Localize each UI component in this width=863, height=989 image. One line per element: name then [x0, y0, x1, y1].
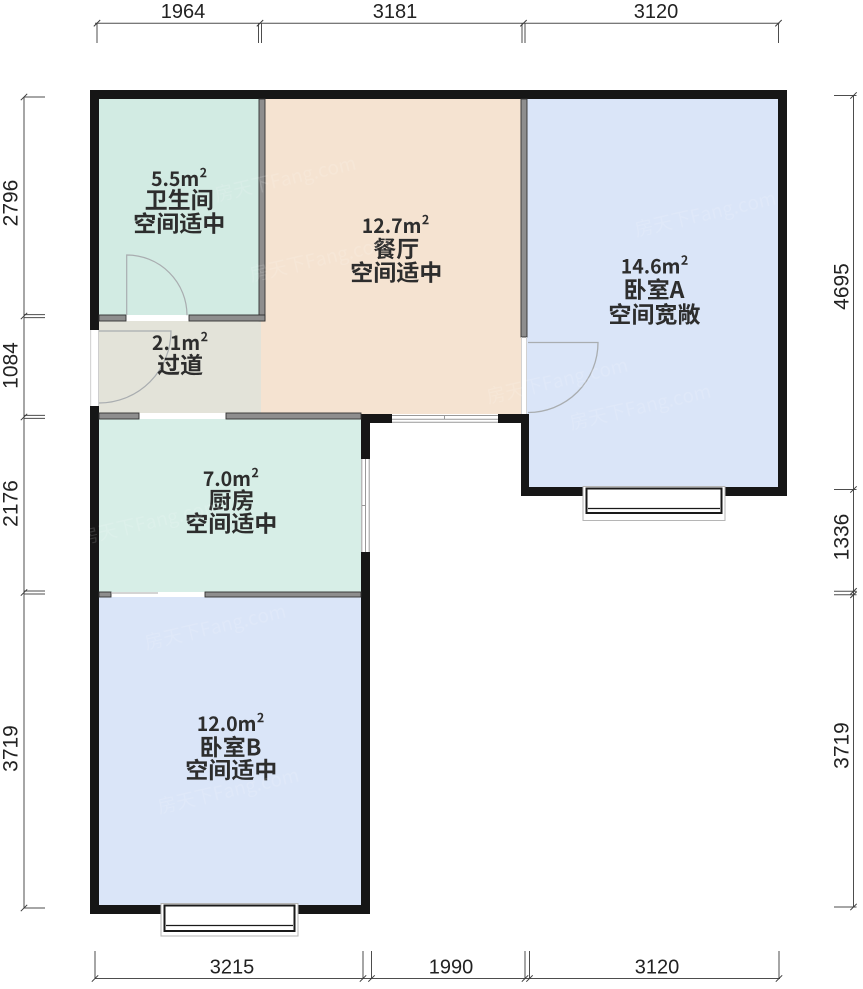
- svg-text:3215: 3215: [210, 956, 255, 978]
- svg-text:4695: 4695: [830, 263, 853, 310]
- svg-text:3181: 3181: [373, 1, 418, 23]
- svg-text:1990: 1990: [429, 956, 474, 978]
- svg-text:3120: 3120: [635, 956, 680, 978]
- svg-text:2796: 2796: [0, 180, 23, 227]
- svg-text:1336: 1336: [830, 514, 853, 561]
- svg-text:2176: 2176: [0, 480, 23, 527]
- svg-text:3719: 3719: [830, 722, 853, 769]
- svg-text:3719: 3719: [0, 725, 23, 772]
- svg-text:1084: 1084: [0, 342, 23, 389]
- svg-text:1964: 1964: [161, 1, 206, 23]
- svg-text:3120: 3120: [634, 1, 679, 23]
